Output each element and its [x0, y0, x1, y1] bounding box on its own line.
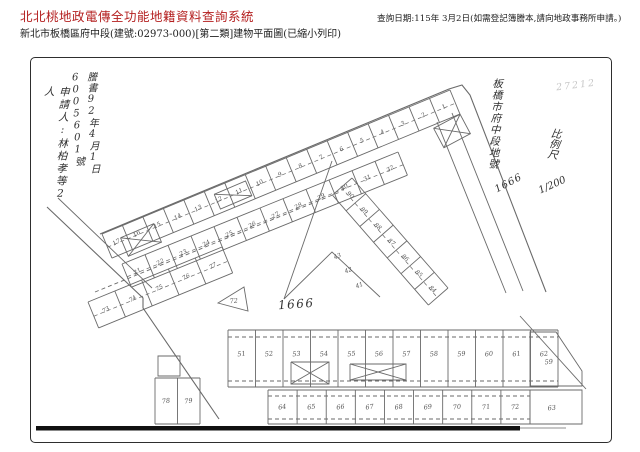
svg-text:6: 6 — [338, 145, 345, 153]
svg-text:41: 41 — [354, 281, 365, 291]
center-lot-number: 1666 — [278, 296, 315, 313]
svg-text:28: 28 — [293, 201, 304, 211]
svg-text:68: 68 — [394, 402, 403, 411]
svg-text:57: 57 — [402, 349, 412, 358]
svg-text:84: 84 — [427, 284, 437, 294]
svg-text:52: 52 — [264, 349, 273, 358]
svg-text:5: 5 — [359, 137, 366, 145]
annotation-applicant: 申請人:林柏孝等2人 — [38, 86, 72, 205]
svg-text:86: 86 — [400, 253, 410, 263]
svg-text:74: 74 — [128, 294, 138, 304]
annotation-issue-note: 謄書92年4月1日6005601號 — [68, 72, 103, 213]
svg-text:42: 42 — [343, 266, 354, 276]
svg-text:53: 53 — [292, 349, 301, 358]
svg-text:61: 61 — [512, 349, 521, 358]
svg-text:69: 69 — [423, 402, 432, 411]
svg-text:58: 58 — [429, 349, 438, 358]
svg-text:14: 14 — [173, 212, 183, 222]
svg-text:63: 63 — [547, 404, 556, 413]
svg-text:27: 27 — [270, 211, 281, 221]
svg-text:15: 15 — [152, 220, 162, 230]
svg-text:17: 17 — [111, 237, 121, 247]
svg-text:89: 89 — [359, 206, 369, 216]
svg-text:4: 4 — [378, 128, 386, 137]
svg-text:22: 22 — [155, 257, 166, 267]
svg-text:72: 72 — [229, 297, 238, 306]
svg-text:62: 62 — [539, 349, 548, 358]
svg-text:25: 25 — [224, 229, 235, 239]
svg-text:26: 26 — [247, 220, 258, 230]
svg-text:85: 85 — [413, 269, 423, 279]
svg-text:72: 72 — [511, 402, 520, 411]
svg-text:88: 88 — [372, 222, 382, 232]
svg-text:54: 54 — [319, 349, 328, 358]
svg-text:78: 78 — [161, 396, 170, 405]
svg-text:67: 67 — [365, 402, 375, 411]
svg-text:90: 90 — [345, 190, 355, 200]
svg-text:87: 87 — [386, 237, 396, 247]
svg-text:23: 23 — [178, 248, 189, 258]
svg-text:65: 65 — [307, 402, 316, 411]
svg-text:13: 13 — [193, 204, 203, 214]
svg-text:64: 64 — [278, 402, 287, 411]
svg-text:76: 76 — [181, 272, 191, 282]
svg-text:59: 59 — [544, 358, 553, 367]
floor-plan-svg: 1716151413121110987654321212223242526272… — [0, 0, 640, 452]
svg-text:10: 10 — [255, 178, 265, 188]
svg-text:77: 77 — [208, 261, 218, 271]
svg-text:79: 79 — [184, 396, 193, 405]
svg-text:24: 24 — [201, 239, 212, 249]
svg-text:21: 21 — [132, 267, 143, 277]
svg-text:59: 59 — [457, 349, 466, 358]
svg-text:56: 56 — [374, 349, 383, 358]
svg-text:32: 32 — [385, 164, 395, 174]
svg-text:31: 31 — [362, 173, 372, 183]
svg-text:71: 71 — [481, 402, 490, 411]
svg-text:60: 60 — [484, 349, 493, 358]
svg-text:75: 75 — [154, 283, 164, 293]
svg-text:51: 51 — [237, 349, 246, 358]
svg-text:70: 70 — [452, 402, 461, 411]
svg-text:66: 66 — [336, 402, 345, 411]
svg-text:73: 73 — [101, 305, 111, 315]
svg-text:55: 55 — [347, 349, 356, 358]
